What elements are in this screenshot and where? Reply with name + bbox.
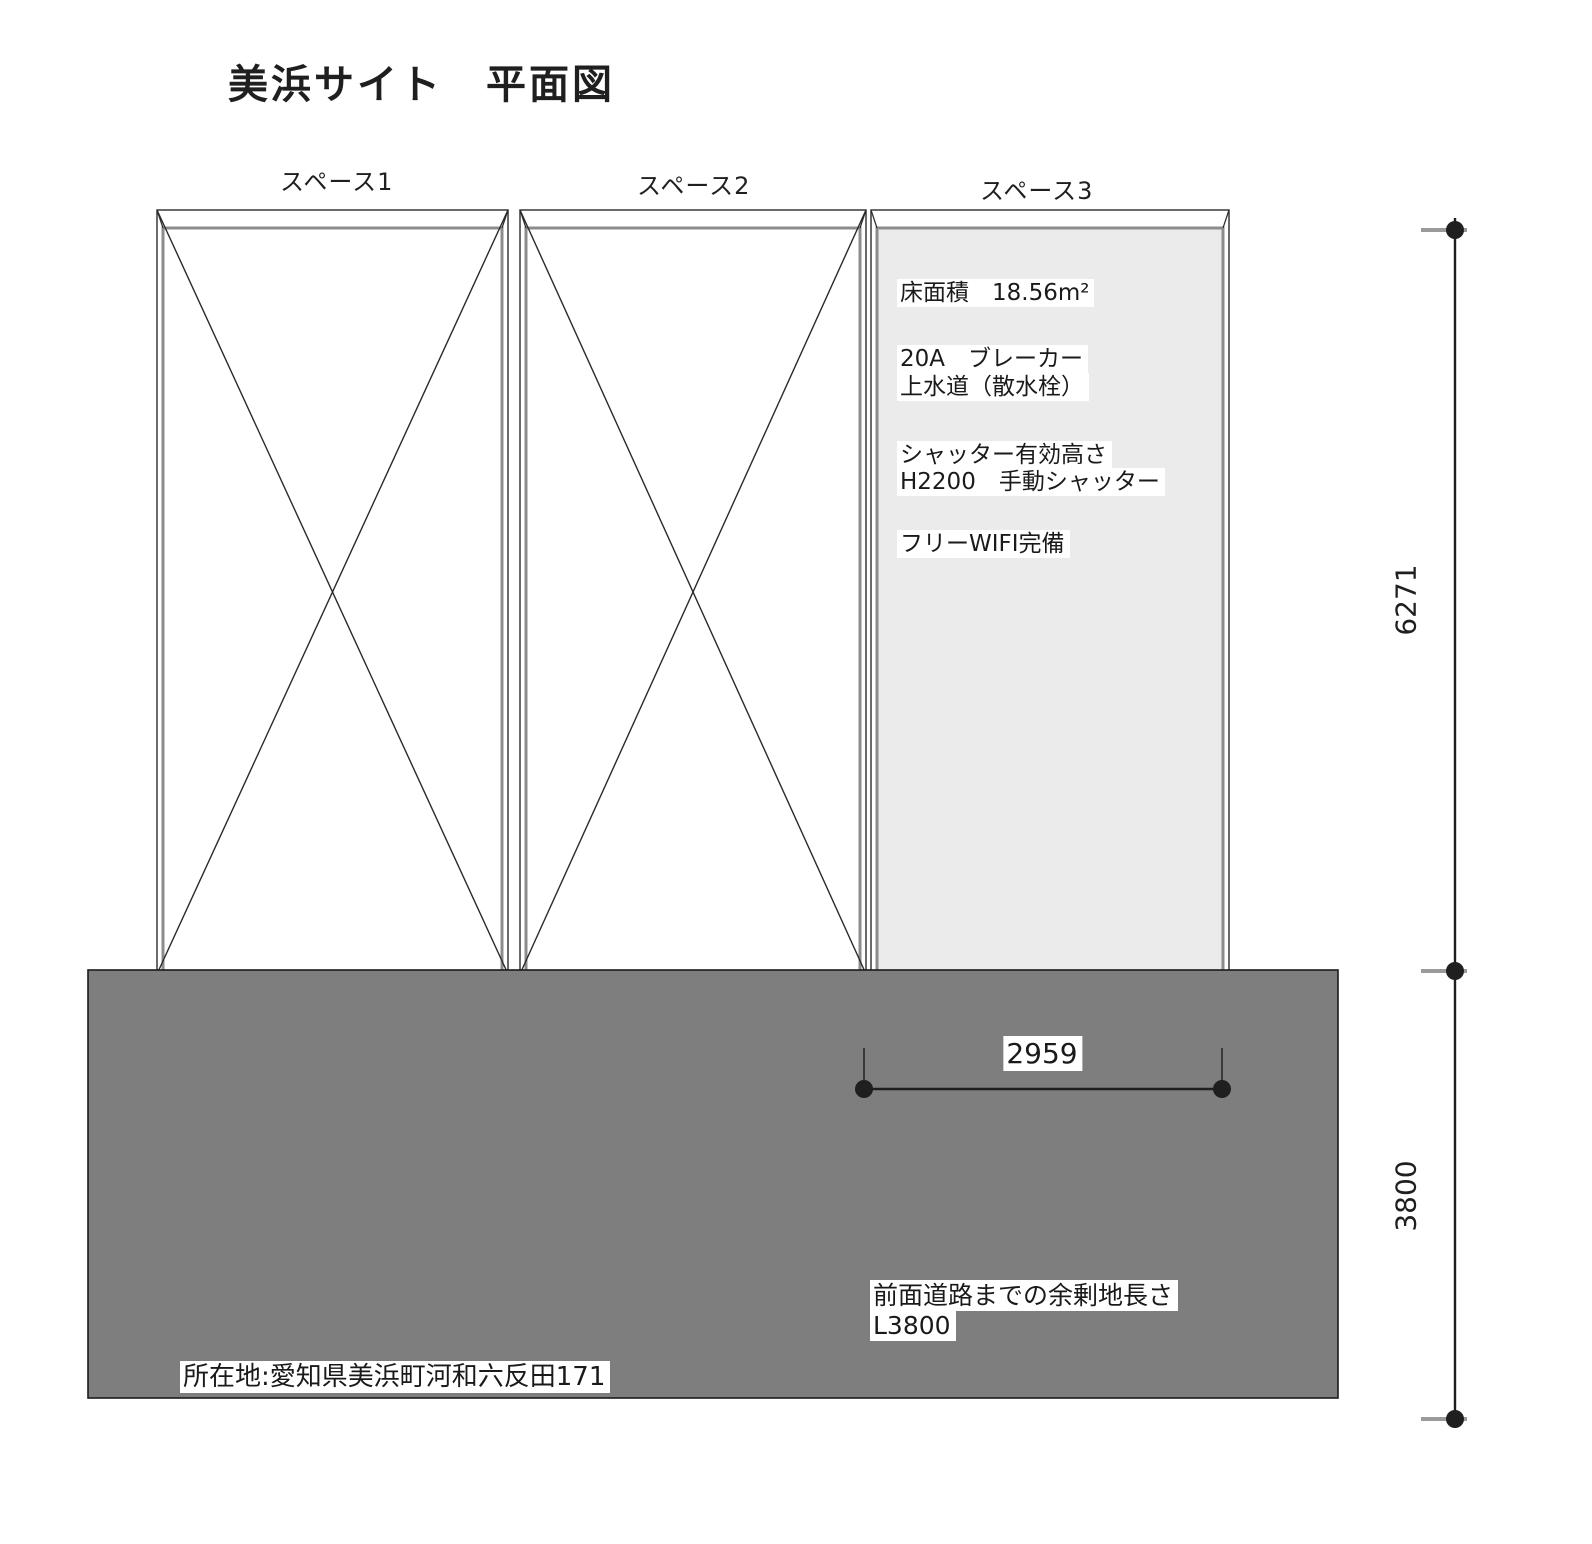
dim-2959-label: 2959 bbox=[1003, 1037, 1082, 1070]
space3-note-floor-area: 床面積 18.56m² bbox=[897, 278, 1094, 308]
space2-corner-mitre-left bbox=[520, 210, 526, 228]
space2-inner-wall bbox=[526, 228, 860, 974]
dim-2959-dot-right bbox=[1213, 1080, 1231, 1098]
space1-label: スペース1 bbox=[280, 162, 393, 197]
front-yard-area bbox=[88, 970, 1338, 1398]
road-note-line2: L3800 bbox=[870, 1311, 956, 1341]
space3-corner-mitre-right bbox=[1223, 210, 1229, 228]
dim-vertical-dot-top bbox=[1446, 221, 1464, 239]
dim-2959-dot-left bbox=[855, 1080, 873, 1098]
space3-note-breaker: 20A ブレーカー bbox=[897, 344, 1088, 374]
dim-3800-label: 3800 bbox=[1390, 1160, 1423, 1231]
space3-inner-wall bbox=[877, 228, 1223, 974]
space2-corner-mitre-right bbox=[860, 210, 866, 228]
space1-corner-mitre-left bbox=[157, 210, 163, 228]
space3-corner-mitre-left bbox=[871, 210, 877, 228]
dim-vertical-dot-middle bbox=[1446, 962, 1464, 980]
page-title: 美浜サイト 平面図 bbox=[228, 52, 615, 110]
space1-corner-mitre-right bbox=[502, 210, 508, 228]
space3-note-wifi: フリーWIFI完備 bbox=[897, 529, 1070, 559]
floor-plan-page: 美浜サイト 平面図 スペース1 スペース2 スペース3 床面積 18.56m² … bbox=[0, 0, 1592, 1544]
dim-vertical-dot-bottom bbox=[1446, 1410, 1464, 1428]
space2-label: スペース2 bbox=[637, 166, 750, 201]
road-note-line1: 前面道路までの余剰地長さ bbox=[870, 1281, 1178, 1311]
space3-note-water-supply: 上水道（散水栓） bbox=[897, 372, 1089, 402]
floor-plan-drawing bbox=[0, 0, 1592, 1544]
dim-6271-label: 6271 bbox=[1390, 564, 1423, 635]
space1-inner-wall bbox=[163, 228, 502, 974]
space3-note-shutter-detail: H2200 手動シャッター bbox=[897, 467, 1165, 497]
space3-label: スペース3 bbox=[980, 171, 1093, 206]
space3-note-shutter-height: シャッター有効高さ bbox=[897, 440, 1112, 470]
site-address: 所在地:愛知県美浜町河和六反田171 bbox=[180, 1356, 610, 1393]
